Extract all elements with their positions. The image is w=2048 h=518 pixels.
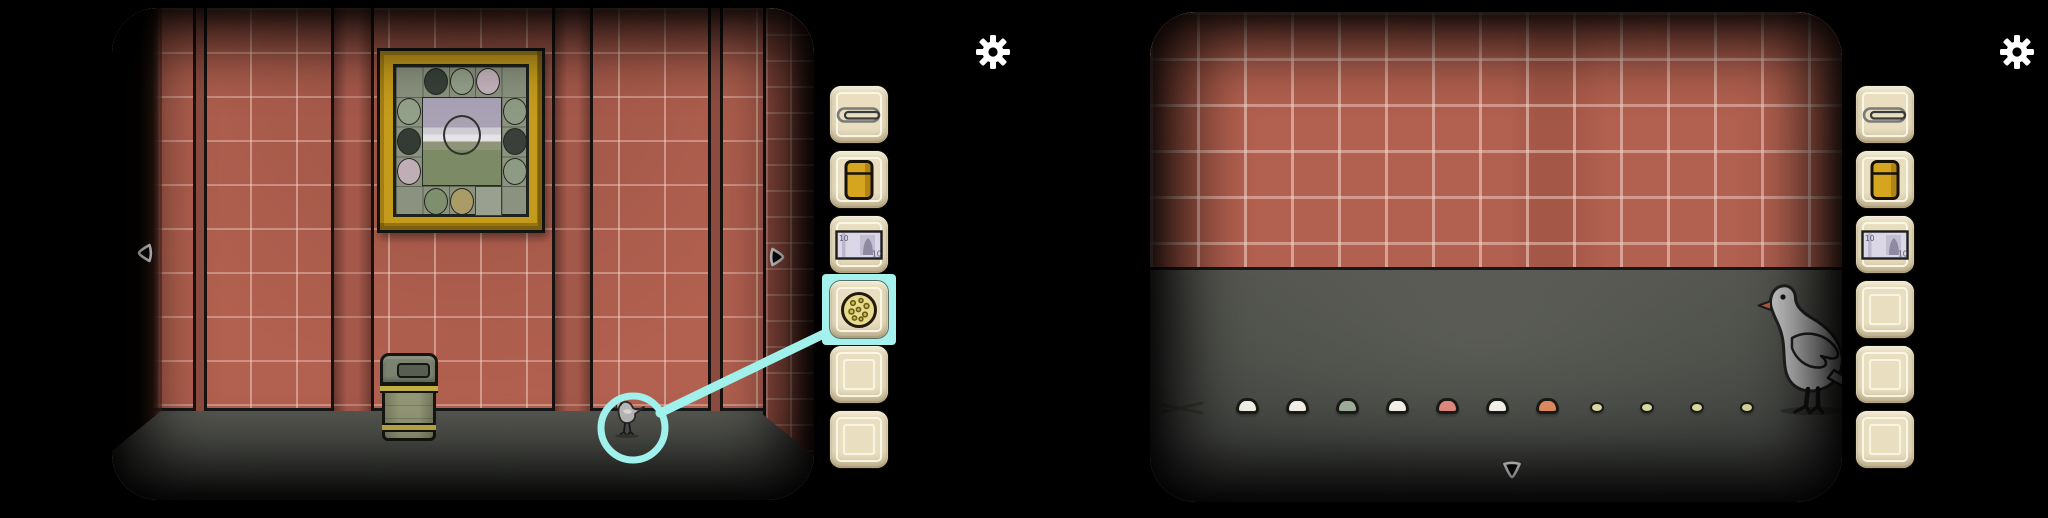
gear-icon [1999, 34, 2035, 70]
svg-text:10: 10 [839, 234, 849, 243]
svg-text:10: 10 [872, 249, 882, 258]
crumb[interactable] [1486, 398, 1509, 414]
picture-circle[interactable] [397, 158, 421, 185]
lighter-icon [1869, 159, 1901, 201]
cookie-icon [839, 290, 879, 330]
wall-seam [193, 8, 207, 411]
picture-circle[interactable] [397, 98, 421, 125]
left-side-wall [112, 8, 162, 460]
picture-circle[interactable] [397, 128, 421, 155]
trash-bin-opening [397, 363, 430, 378]
scene-floor-closeup [1150, 12, 1842, 502]
tiled-wall [1150, 12, 1842, 270]
crumb[interactable] [1436, 398, 1459, 414]
pigeon[interactable] [608, 393, 648, 443]
inventory-right: 1010 [1856, 86, 1914, 468]
crumb[interactable] [1336, 398, 1359, 414]
inventory-slot-banknote[interactable]: 1010 [1856, 216, 1914, 273]
inventory-slot-cookie[interactable] [830, 281, 888, 338]
lighter-icon [843, 159, 875, 201]
gear-icon [975, 34, 1011, 70]
right-side-wall [763, 8, 814, 470]
inventory-slot-empty[interactable] [1856, 346, 1914, 403]
inventory-slot-lighter[interactable] [830, 151, 888, 208]
nav-left-button[interactable] [134, 242, 154, 264]
inventory-slot-lighter[interactable] [1856, 151, 1914, 208]
inventory-left: 1010 [830, 86, 888, 468]
trash-bin-band [380, 384, 438, 393]
picture-landscape [422, 97, 501, 186]
inventory-slot-empty[interactable] [1856, 281, 1914, 338]
picture-circle[interactable] [503, 98, 527, 125]
crumb[interactable] [1536, 398, 1559, 414]
nav-right-button[interactable] [768, 246, 788, 268]
trash-bin-band [382, 423, 436, 432]
crumb[interactable] [1236, 398, 1259, 414]
picture-missing-cell[interactable] [475, 186, 501, 216]
picture-circle[interactable] [424, 188, 448, 215]
nav-down-button[interactable] [1501, 460, 1521, 482]
svg-text:10: 10 [1898, 249, 1908, 258]
pigeon[interactable] [1752, 274, 1842, 420]
inventory-slot-paperclip[interactable] [830, 86, 888, 143]
wall-pillar [552, 8, 593, 411]
inventory-slot-paperclip[interactable] [1856, 86, 1914, 143]
banknote-icon: 1010 [835, 230, 883, 260]
wall-seam [708, 8, 723, 411]
floor [112, 408, 814, 500]
scene-room-view [112, 8, 814, 500]
banknote-icon: 1010 [1861, 230, 1909, 260]
framed-picture[interactable] [377, 48, 545, 233]
picture-circle[interactable] [503, 128, 527, 155]
svg-text:10: 10 [1865, 234, 1875, 243]
scratch-mark [1160, 398, 1206, 422]
inventory-slot-banknote[interactable]: 1010 [830, 216, 888, 273]
paperclip-icon [836, 105, 882, 125]
inventory-slot-empty[interactable] [1856, 411, 1914, 468]
trash-bin[interactable] [380, 353, 438, 441]
left-arrow-icon [134, 242, 154, 264]
inventory-slot-empty[interactable] [830, 346, 888, 403]
inventory-slot-empty[interactable] [830, 411, 888, 468]
trash-bin-lid [380, 353, 438, 385]
crumb[interactable] [1690, 402, 1704, 413]
picture-circle[interactable] [424, 68, 448, 95]
crumb[interactable] [1286, 398, 1309, 414]
picture-circle[interactable] [450, 68, 474, 95]
trash-bin-body [382, 393, 436, 441]
picture-center-ring [443, 115, 481, 155]
down-arrow-icon [1501, 460, 1523, 481]
floor [1150, 267, 1842, 502]
right-arrow-icon [768, 246, 788, 268]
settings-button[interactable] [1999, 34, 2035, 70]
wall-pillar [331, 8, 374, 411]
picture-circle[interactable] [503, 158, 527, 185]
crumb[interactable] [1386, 398, 1409, 414]
settings-button[interactable] [975, 34, 1011, 70]
picture-circle[interactable] [450, 188, 474, 215]
crumb[interactable] [1640, 402, 1654, 413]
picture-circle[interactable] [476, 68, 500, 95]
paperclip-icon [1862, 105, 1908, 125]
crumb[interactable] [1590, 402, 1604, 413]
game-screen: { "banknote_value": "10", "colors": { "b… [0, 0, 2048, 518]
picture-puzzle-grid [393, 64, 529, 217]
